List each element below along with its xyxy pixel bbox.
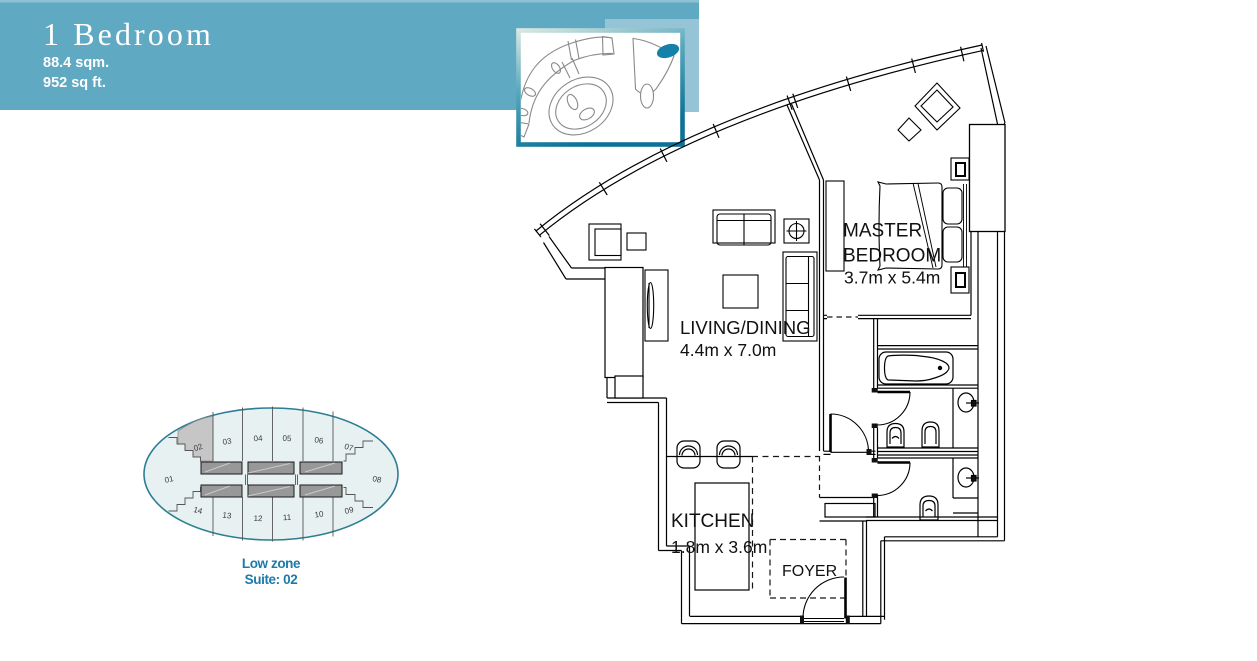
svg-text:13: 13 [222, 510, 233, 520]
svg-text:FOYER: FOYER [782, 563, 837, 580]
svg-text:952 sq ft.: 952 sq ft. [43, 75, 106, 91]
svg-text:LIVING/DINING: LIVING/DINING [680, 317, 811, 338]
svg-text:04: 04 [253, 434, 263, 444]
svg-text:12: 12 [253, 514, 263, 523]
svg-text:4.4m x 7.0m: 4.4m x 7.0m [680, 340, 776, 360]
svg-text:10: 10 [314, 509, 325, 519]
svg-text:1 Bedroom: 1 Bedroom [43, 16, 214, 52]
svg-text:05: 05 [282, 434, 292, 443]
svg-text:KITCHEN: KITCHEN [671, 511, 754, 532]
svg-text:1.8m x 3.6m: 1.8m x 3.6m [671, 537, 767, 557]
svg-text:88.4 sqm.: 88.4 sqm. [43, 55, 109, 71]
svg-text:11: 11 [283, 513, 292, 522]
svg-text:3.7m x 5.4m: 3.7m x 5.4m [844, 268, 940, 288]
svg-text:Suite: 02: Suite: 02 [245, 572, 298, 587]
svg-text:BEDROOM: BEDROOM [843, 246, 941, 267]
svg-text:MASTER: MASTER [843, 221, 922, 242]
svg-text:Low zone: Low zone [242, 556, 301, 571]
